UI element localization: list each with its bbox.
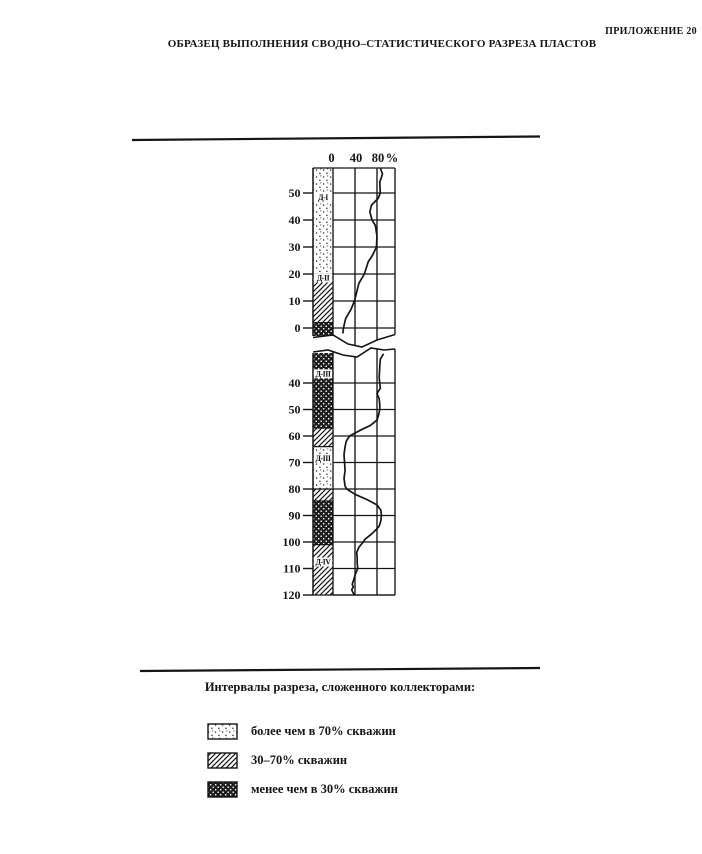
legend-item-label: менее чем в 30% скважин <box>251 782 398 797</box>
depth-tick-label: 120 <box>283 588 301 602</box>
legend-item-label: более чем в 70% скважин <box>251 724 396 739</box>
block-label: Д-I <box>318 193 328 202</box>
depth-tick-label: 40 <box>289 376 301 390</box>
block-label: Д-II <box>317 273 330 282</box>
column-block-crosshatch <box>313 353 333 428</box>
legend-item-label: 30–70% скважин <box>251 753 347 768</box>
depth-axis: 405060708090100110120 <box>283 376 314 602</box>
column-block-dotted <box>313 447 333 489</box>
top-rule <box>132 137 540 141</box>
legend-caption: Интервалы разреза, сложенного коллектора… <box>130 680 550 695</box>
block-label: Д-III <box>315 454 330 463</box>
block-label: Д-IV <box>315 558 331 567</box>
x-axis-unit: % <box>386 151 399 165</box>
depth-tick-label: 10 <box>289 294 301 308</box>
column-block-dotted <box>313 168 333 274</box>
crosshatch-pattern-swatch-icon <box>207 781 238 798</box>
column-block-crosshatch <box>313 501 333 545</box>
depth-tick-label: 50 <box>289 403 301 417</box>
document-page: ПРИЛОЖЕНИЕ 20 ОБРАЗЕЦ ВЫПОЛНЕНИЯ СВОДНО–… <box>0 0 702 854</box>
legend-item-crosshatch: менее чем в 30% скважин <box>207 781 398 798</box>
depth-tick-label: 20 <box>289 267 301 281</box>
column-block-diagonal <box>313 489 333 501</box>
legend-item-diagonal: 30–70% скважин <box>207 752 347 769</box>
x-tick-label: 80 <box>372 151 385 165</box>
dotted-pattern-swatch-icon <box>207 723 238 740</box>
column-block-crosshatch <box>313 323 333 336</box>
depth-tick-label: 70 <box>289 456 301 470</box>
depth-tick-label: 100 <box>283 535 301 549</box>
depth-tick-label: 110 <box>283 562 300 576</box>
depth-tick-label: 80 <box>289 482 301 496</box>
bottom-rule <box>140 668 540 671</box>
panel-upper: 5040302010004080%Д-IД-II <box>289 151 399 347</box>
column-block-diagonal <box>313 545 333 595</box>
depth-tick-label: 40 <box>289 213 301 227</box>
legend-item-dotted: более чем в 70% скважин <box>207 723 396 740</box>
x-axis-labels: 04080% <box>328 151 398 165</box>
column-block-diagonal <box>313 428 333 447</box>
depth-tick-label: 60 <box>289 429 301 443</box>
diagonal-pattern-swatch-icon <box>207 752 238 769</box>
depth-tick-label: 0 <box>295 321 301 335</box>
depth-tick-label: 90 <box>289 509 301 523</box>
x-tick-label: 0 <box>328 151 334 165</box>
depth-tick-label: 50 <box>289 186 301 200</box>
break-edge <box>313 335 395 348</box>
block-label: Д-III <box>315 369 330 378</box>
panel-lower: 405060708090100110120Д-IIIД-IIIД-IV <box>283 348 396 602</box>
x-tick-label: 40 <box>350 151 363 165</box>
depth-axis: 50403020100 <box>289 186 314 335</box>
depth-tick-label: 30 <box>289 240 301 254</box>
